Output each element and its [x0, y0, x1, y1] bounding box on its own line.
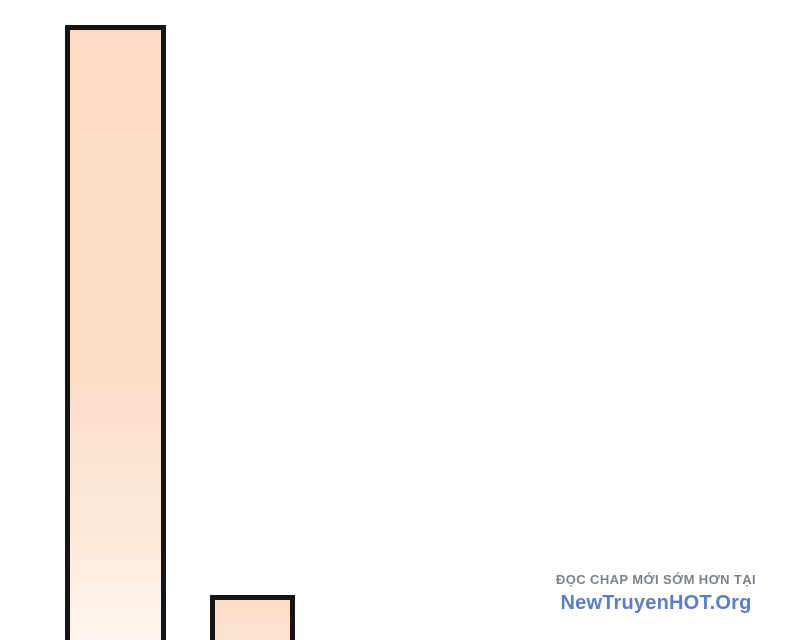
watermark: ĐỌC CHAP MỚI SỚM HƠN TẠI NewTruyenHOT.Or…: [540, 572, 772, 616]
watermark-site-name: NewTruyenHOT.Org: [540, 591, 772, 616]
comic-panel-tall: [65, 25, 166, 640]
watermark-tagline: ĐỌC CHAP MỚI SỚM HƠN TẠI: [540, 572, 772, 588]
comic-panel-small: [210, 595, 295, 640]
comic-page: { "page": { "background": "#ffffff" }, "…: [0, 0, 800, 640]
